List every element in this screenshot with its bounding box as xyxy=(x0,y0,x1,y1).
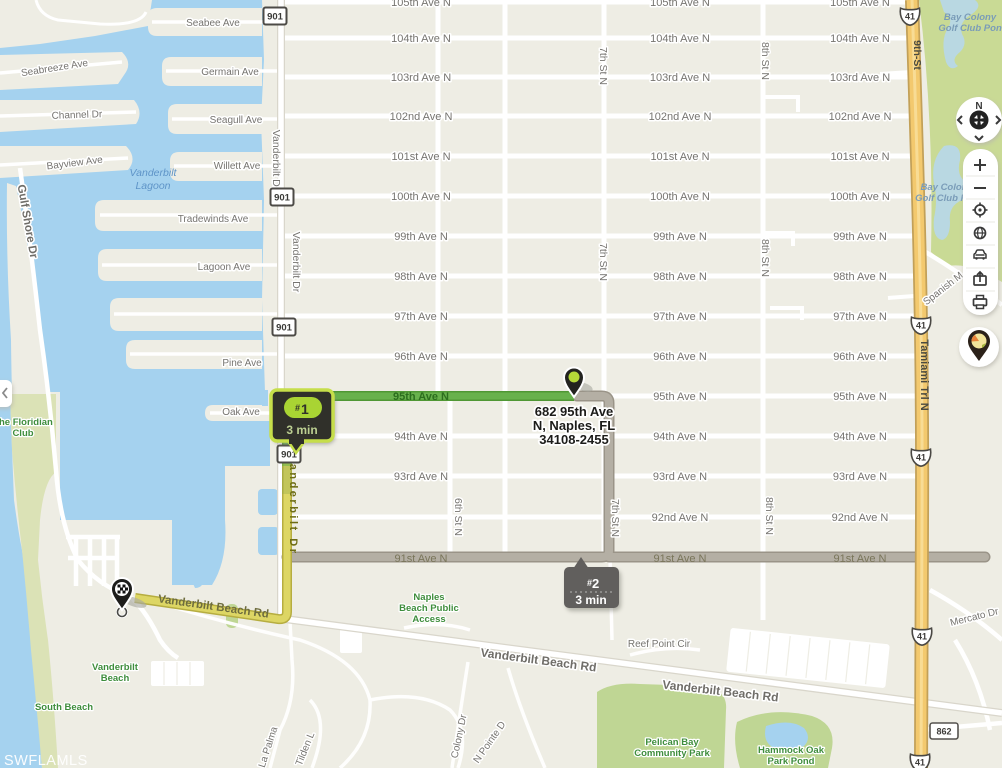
svg-text:97th Ave N: 97th Ave N xyxy=(394,311,448,323)
svg-text:Channel Dr: Channel Dr xyxy=(51,109,103,122)
svg-text:98th Ave N: 98th Ave N xyxy=(653,271,707,283)
svg-text:94th Ave N: 94th Ave N xyxy=(653,431,707,443)
svg-text:105th Ave N: 105th Ave N xyxy=(830,0,890,9)
svg-text:41: 41 xyxy=(916,453,926,463)
svg-text:Pine Ave: Pine Ave xyxy=(222,358,262,369)
svg-text:Oak Ave: Oak Ave xyxy=(222,407,260,418)
svg-text:901: 901 xyxy=(267,12,284,23)
svg-text:102nd Ave N: 102nd Ave N xyxy=(390,111,453,123)
svg-text:Golf Club Pond: Golf Club Pond xyxy=(938,23,1002,34)
svg-text:8th St N: 8th St N xyxy=(759,42,771,80)
svg-text:Club: Club xyxy=(12,428,33,439)
svg-text:3 min: 3 min xyxy=(286,423,317,437)
svg-text:98th Ave N: 98th Ave N xyxy=(394,271,448,283)
svg-text:1: 1 xyxy=(301,401,309,417)
svg-text:Seagull Ave: Seagull Ave xyxy=(210,115,263,126)
svg-text:7th St N: 7th St N xyxy=(609,499,621,537)
svg-text:95th Ave N: 95th Ave N xyxy=(833,391,887,403)
svg-text:93rd Ave N: 93rd Ave N xyxy=(394,471,448,483)
svg-text:Vanderbilt: Vanderbilt xyxy=(130,167,178,179)
svg-text:41: 41 xyxy=(905,12,915,22)
svg-text:682 95th Ave: 682 95th Ave xyxy=(535,404,614,419)
svg-text:100th Ave N: 100th Ave N xyxy=(830,191,890,203)
svg-text:104th Ave N: 104th Ave N xyxy=(650,33,710,45)
svg-text:99th Ave N: 99th Ave N xyxy=(653,231,707,243)
svg-text:96th Ave N: 96th Ave N xyxy=(394,351,448,363)
svg-text:9th-St: 9th-St xyxy=(911,40,923,70)
svg-text:94th Ave N: 94th Ave N xyxy=(833,431,887,443)
svg-text:Park Pond: Park Pond xyxy=(768,756,815,767)
svg-text:101st Ave N: 101st Ave N xyxy=(391,151,450,163)
svg-text:Willett Ave: Willett Ave xyxy=(214,161,261,172)
svg-text:34108-2455: 34108-2455 xyxy=(539,432,608,447)
svg-text:Bay Colon: Bay Colon xyxy=(921,182,968,193)
svg-text:Vanderbilt Dr: Vanderbilt Dr xyxy=(290,232,302,293)
svg-text:N, Naples, FL: N, Naples, FL xyxy=(533,418,615,433)
svg-text:103rd Ave N: 103rd Ave N xyxy=(650,72,710,84)
svg-text:Vanderbilt: Vanderbilt xyxy=(92,662,139,673)
svg-text:103rd Ave N: 103rd Ave N xyxy=(391,72,451,84)
svg-text:Germain Ave: Germain Ave xyxy=(201,67,259,78)
svg-text:7th St N: 7th St N xyxy=(597,47,609,85)
svg-text:95th Ave N: 95th Ave N xyxy=(653,391,707,403)
svg-text:8th St N: 8th St N xyxy=(763,497,775,535)
svg-text:104th Ave N: 104th Ave N xyxy=(830,33,890,45)
svg-text:Beach Public: Beach Public xyxy=(399,603,459,614)
svg-text:Access: Access xyxy=(412,614,445,625)
svg-text:Pelican Bay: Pelican Bay xyxy=(645,737,699,748)
svg-text:97th Ave N: 97th Ave N xyxy=(653,311,707,323)
svg-text:94th Ave N: 94th Ave N xyxy=(394,431,448,443)
svg-text:901: 901 xyxy=(276,323,293,334)
svg-text:South Beach: South Beach xyxy=(35,702,93,713)
svg-text:Tradewinds Ave: Tradewinds Ave xyxy=(178,214,249,225)
svg-text:91st Ave N: 91st Ave N xyxy=(395,553,448,565)
svg-text:The Floridian: The Floridian xyxy=(0,417,53,428)
svg-text:Naples: Naples xyxy=(413,592,444,603)
svg-text:91st Ave N: 91st Ave N xyxy=(834,553,887,565)
svg-text:99th Ave N: 99th Ave N xyxy=(394,231,448,243)
svg-text:100th Ave N: 100th Ave N xyxy=(391,191,451,203)
svg-text:Hammock Oak: Hammock Oak xyxy=(758,745,825,756)
svg-text:102nd Ave N: 102nd Ave N xyxy=(649,111,712,123)
svg-text:105th Ave N: 105th Ave N xyxy=(391,0,451,9)
svg-text:Lagoon Ave: Lagoon Ave xyxy=(198,262,251,273)
svg-text:92nd Ave N: 92nd Ave N xyxy=(832,512,889,524)
svg-text:97th Ave N: 97th Ave N xyxy=(833,311,887,323)
svg-text:Lagoon: Lagoon xyxy=(135,180,170,192)
svg-text:Tamiami Trl N: Tamiami Trl N xyxy=(918,339,930,410)
svg-text:7th St N: 7th St N xyxy=(597,243,609,281)
svg-text:105th Ave N: 105th Ave N xyxy=(650,0,710,9)
svg-text:104th Ave N: 104th Ave N xyxy=(391,33,451,45)
svg-text:96th Ave N: 96th Ave N xyxy=(833,351,887,363)
svg-text:93rd Ave N: 93rd Ave N xyxy=(833,471,887,483)
svg-text:6th St N: 6th St N xyxy=(452,498,464,536)
svg-text:Beach: Beach xyxy=(101,673,130,684)
svg-text:SWFLAMLS: SWFLAMLS xyxy=(4,753,88,768)
svg-text:99th Ave N: 99th Ave N xyxy=(833,231,887,243)
svg-text:3 min: 3 min xyxy=(575,593,606,607)
svg-text:102nd Ave N: 102nd Ave N xyxy=(829,111,892,123)
svg-text:901: 901 xyxy=(274,193,291,204)
svg-text:8th St N: 8th St N xyxy=(759,239,771,277)
svg-text:862: 862 xyxy=(936,727,951,737)
svg-text:96th Ave N: 96th Ave N xyxy=(653,351,707,363)
svg-text:Seabee Ave: Seabee Ave xyxy=(186,18,240,29)
svg-text:101st Ave N: 101st Ave N xyxy=(650,151,709,163)
svg-text:Reef Point Cir: Reef Point Cir xyxy=(628,639,691,650)
svg-text:N: N xyxy=(975,101,982,112)
svg-text:41: 41 xyxy=(916,321,926,331)
svg-text:95th Ave N: 95th Ave N xyxy=(393,391,449,403)
svg-text:2: 2 xyxy=(592,576,599,591)
svg-text:101st Ave N: 101st Ave N xyxy=(830,151,889,163)
svg-text:Bay Colony: Bay Colony xyxy=(944,12,997,23)
svg-text:100th Ave N: 100th Ave N xyxy=(650,191,710,203)
svg-text:Community Park: Community Park xyxy=(634,748,710,759)
svg-text:93rd Ave N: 93rd Ave N xyxy=(653,471,707,483)
svg-text:103rd Ave N: 103rd Ave N xyxy=(830,72,890,84)
svg-text:41: 41 xyxy=(917,632,927,642)
svg-text:92nd Ave N: 92nd Ave N xyxy=(652,512,709,524)
svg-text:91st Ave N: 91st Ave N xyxy=(654,553,707,565)
svg-text:41: 41 xyxy=(915,758,925,768)
svg-text:Vanderbilt Dr: Vanderbilt Dr xyxy=(287,455,299,556)
svg-text:Vanderbilt Dr: Vanderbilt Dr xyxy=(270,130,282,191)
svg-text:#: # xyxy=(295,403,300,413)
svg-text:98th Ave N: 98th Ave N xyxy=(833,271,887,283)
svg-text:Golf Club P: Golf Club P xyxy=(915,193,967,204)
